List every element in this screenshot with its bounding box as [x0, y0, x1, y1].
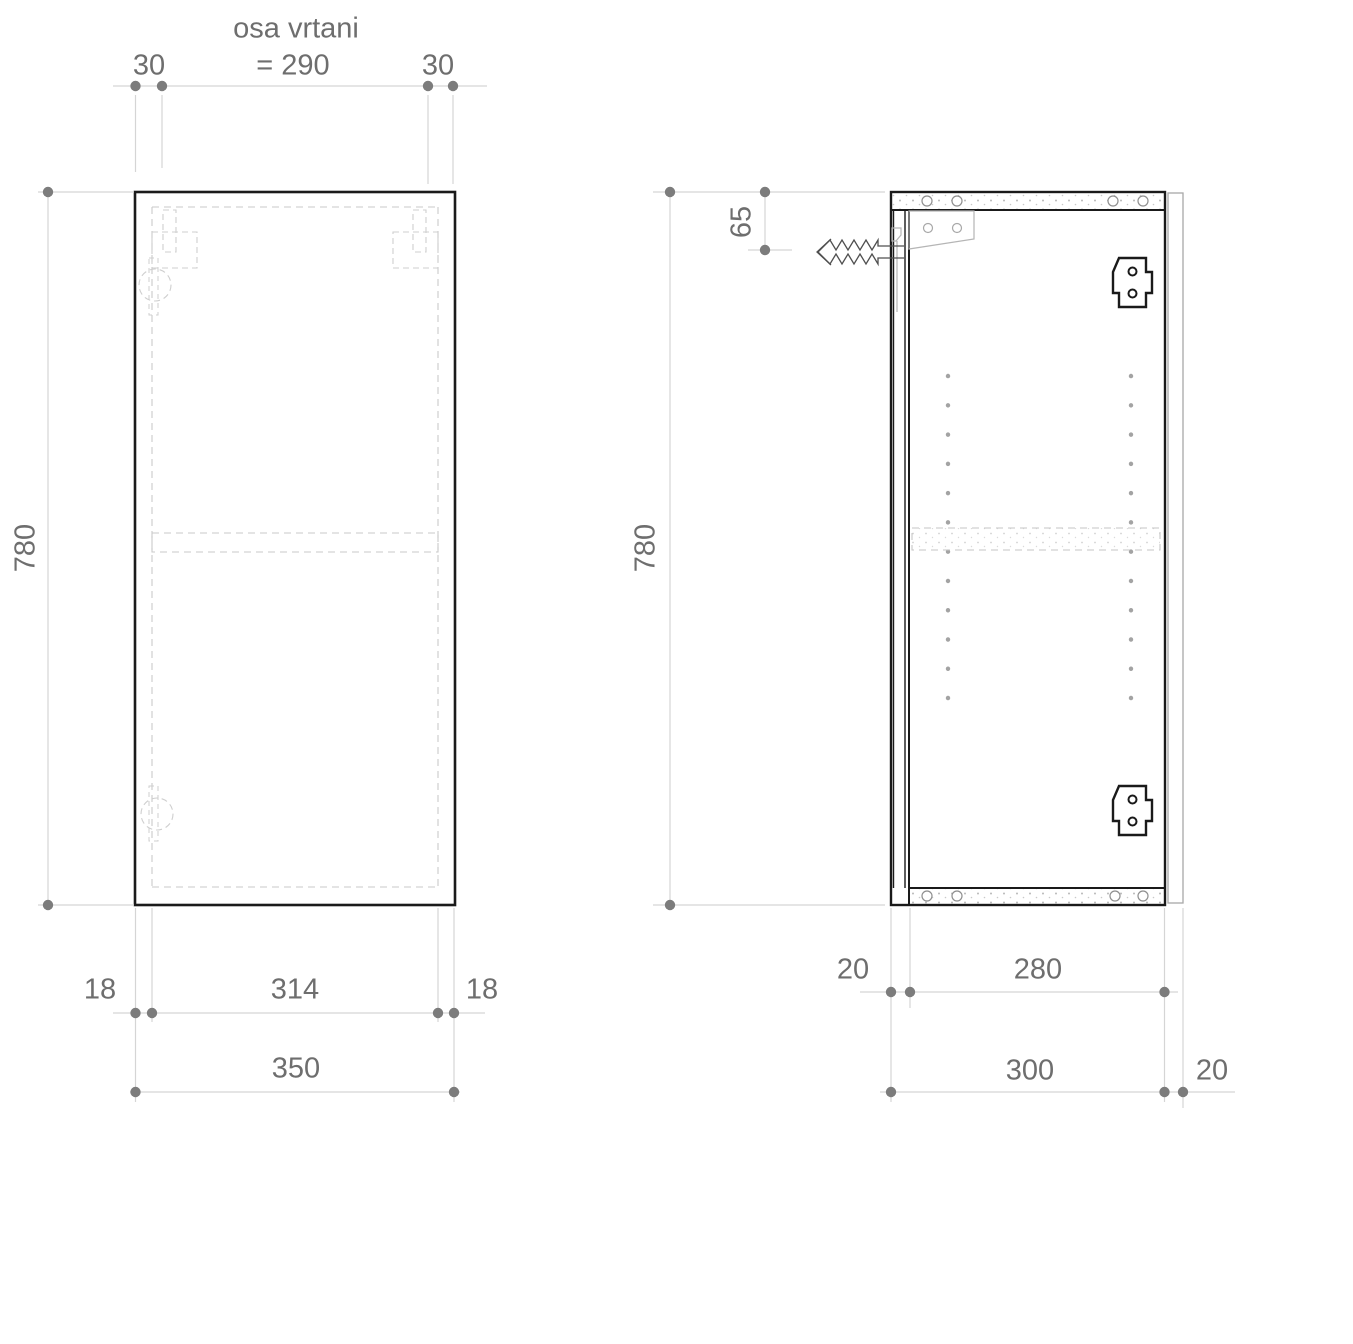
dim-front-left-panel: 18 [84, 976, 116, 1005]
dim-front-height: 780 [12, 524, 41, 572]
dim-side-back-offset: 20 [1196, 1057, 1228, 1086]
annotation-axis-span: = 290 [256, 52, 329, 81]
dim-front-right-panel: 18 [466, 976, 498, 1005]
dim-front-top-left-offset: 30 [133, 52, 165, 81]
front-view-linework [135, 192, 455, 905]
front-cabinet-outline [135, 192, 455, 905]
side-shelf-dashed [912, 528, 1160, 550]
dim-front-total-width: 350 [272, 1055, 320, 1084]
side-bottom-rail [909, 888, 1165, 905]
dim-side-total-depth: 300 [1006, 1057, 1054, 1086]
dim-front-inner-width: 314 [271, 976, 319, 1005]
side-back-strip [1168, 193, 1183, 903]
side-view-linework [817, 192, 1183, 905]
dim-side-hanger-offset: 65 [728, 206, 757, 238]
drawing-canvas [0, 0, 1353, 1344]
hinge-mounting-plate-top [1113, 258, 1152, 307]
annotation-drilling-axis: osa vrtani [233, 15, 359, 44]
dim-side-height: 780 [632, 524, 661, 572]
dim-side-door-thickness: 20 [837, 956, 869, 985]
technical-drawing-page: osa vrtani = 290 30 30 780 18 314 18 350… [0, 0, 1353, 1344]
dim-front-top-right-offset: 30 [422, 52, 454, 81]
dim-side-inner-depth: 280 [1014, 956, 1062, 985]
hinge-mounting-plate-bottom [1113, 786, 1152, 835]
